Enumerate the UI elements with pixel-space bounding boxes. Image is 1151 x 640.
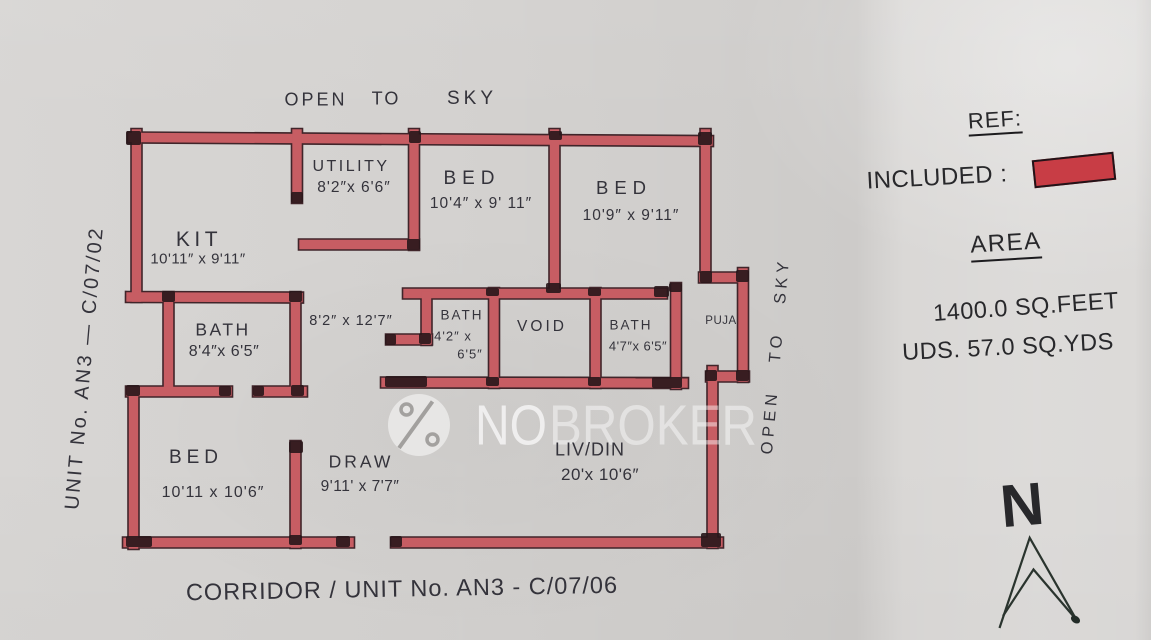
svg-text:NO: NO	[475, 394, 547, 458]
